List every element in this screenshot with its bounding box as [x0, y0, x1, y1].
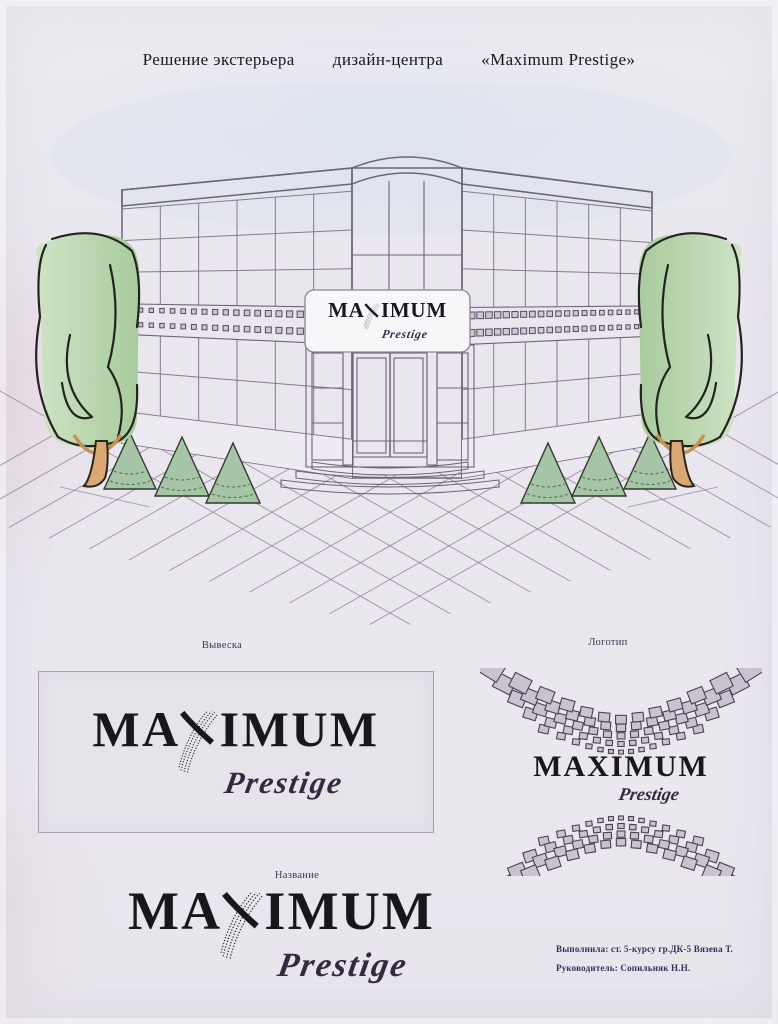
brand-suffix: IMUM — [381, 300, 447, 321]
scanned-sheet: Решение экстерьера дизайн-центра «Maximu… — [0, 0, 778, 1024]
stylized-x-icon — [179, 710, 221, 773]
logo-wordmark: MAXIMUM — [480, 752, 762, 782]
brand-prefix: MA — [328, 300, 364, 321]
brand-tagline: Prestige — [380, 327, 428, 342]
credits-line-2: Руководитель: Сопильняк Н.Н. — [556, 959, 746, 978]
brand-tagline: Prestige — [222, 765, 347, 801]
brand-tagline: Prestige — [275, 947, 516, 985]
stylized-x-icon — [221, 891, 266, 959]
sky-wash — [50, 85, 730, 235]
title-part-2: дизайн-центра — [333, 50, 444, 70]
stylized-x-icon — [364, 303, 381, 329]
brand-prefix: MA — [128, 884, 222, 938]
brand-prefix: MA — [92, 704, 180, 754]
brand-suffix: IMUM — [220, 704, 380, 754]
logo-mark: MAXIMUM Prestige — [480, 668, 762, 876]
signboard-mockup: MA IMUM Prestige — [38, 671, 434, 833]
logo-tagline: Prestige — [478, 784, 764, 805]
page-title: Решение экстерьера дизайн-центра «Maximu… — [0, 50, 778, 70]
label-name: Название — [232, 870, 362, 881]
title-part-1: Решение экстерьера — [143, 50, 295, 70]
building-sketch — [0, 85, 778, 630]
credits: Выполнила: ст. 5-курсу гр.ДК-5 Вязева Т.… — [556, 940, 746, 978]
name-wordmark: MA IMUM Prestige — [128, 884, 512, 985]
building-sign-wordmark: MA IMUM Prestige — [303, 290, 472, 352]
title-part-3: «Maximum Prestige» — [481, 50, 635, 70]
credits-line-1: Выполнила: ст. 5-курсу гр.ДК-5 Вязева Т. — [556, 940, 746, 959]
brand-suffix: IMUM — [264, 884, 435, 938]
label-logo: Логотип — [548, 637, 668, 648]
label-signboard: Вывеска — [162, 640, 282, 651]
